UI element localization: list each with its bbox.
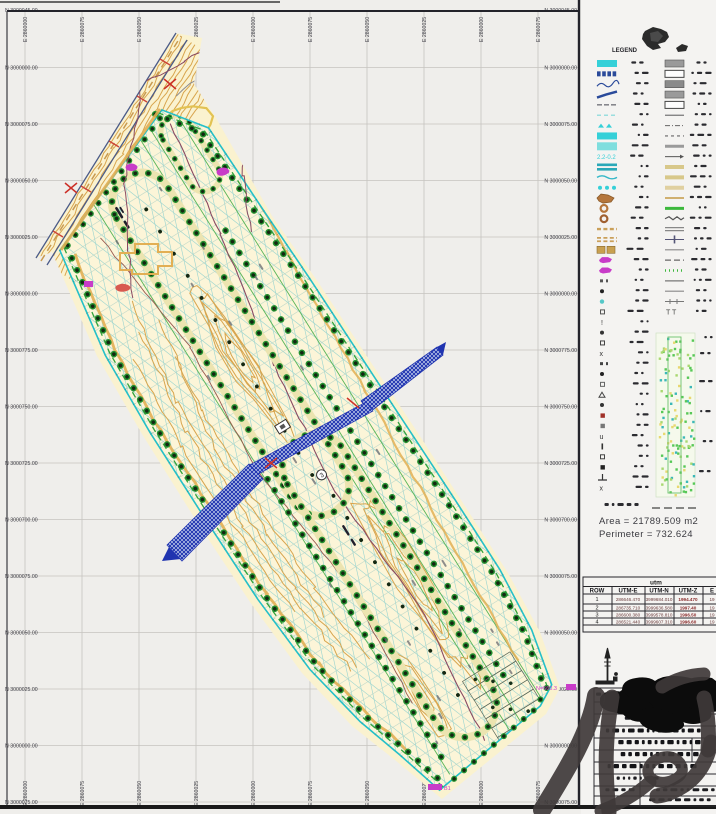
svg-text:N 3000000.00: N 3000000.00 (544, 66, 577, 72)
svg-text:LEGEND: LEGEND (612, 48, 638, 54)
svg-text:utm: utm (650, 580, 662, 587)
svg-text:E 2860000: E 2860000 (251, 17, 257, 42)
svg-text:2.2-0.2: 2.2-0.2 (597, 155, 616, 161)
svg-text:19: 19 (709, 597, 715, 602)
svg-text:N 3000000.00: N 3000000.00 (5, 744, 38, 750)
svg-text:ROW: ROW (590, 589, 605, 595)
svg-text:Area = 21789.509 m2: Area = 21789.509 m2 (599, 516, 698, 527)
svg-text:x: x (600, 351, 604, 358)
svg-text:286521.440: 286521.440 (616, 619, 641, 624)
svg-text:u: u (600, 434, 604, 441)
svg-text:3: 3 (595, 612, 598, 618)
svg-text:T T: T T (666, 309, 677, 316)
svg-text:E 2860075: E 2860075 (80, 17, 86, 42)
svg-text:286735.710: 286735.710 (616, 605, 641, 610)
svg-text:3999636.580: 3999636.580 (646, 605, 673, 610)
svg-text:N 3000075.00: N 3000075.00 (5, 122, 38, 128)
svg-text:N 3000775.00: N 3000775.00 (544, 348, 577, 354)
svg-text:4: 4 (595, 619, 598, 625)
svg-text:N 3000025.00: N 3000025.00 (5, 235, 38, 241)
svg-text:N 3000725.00: N 3000725.00 (5, 461, 38, 467)
svg-text:E 2860075: E 2860075 (308, 781, 314, 806)
svg-text:1996.50: 1996.50 (680, 612, 697, 617)
svg-text:N 3000725.00: N 3000725.00 (544, 461, 577, 467)
svg-text:!: ! (601, 320, 603, 327)
svg-text:N 3000000.00: N 3000000.00 (5, 66, 38, 72)
svg-text:N 3000775.00: N 3000775.00 (5, 348, 38, 354)
svg-text:E 2860000: E 2860000 (479, 781, 485, 806)
svg-text:E 2860050: E 2860050 (365, 781, 371, 806)
svg-text:UTM-Z: UTM-Z (679, 589, 698, 595)
svg-text:19: 19 (709, 612, 715, 617)
svg-text:E 2860000: E 2860000 (479, 17, 485, 42)
svg-text:N 3000025.00: N 3000025.00 (5, 687, 38, 693)
svg-text:1997.40: 1997.40 (680, 605, 697, 610)
svg-text:UTM-N: UTM-N (649, 589, 668, 595)
svg-text:19: 19 (709, 619, 715, 624)
svg-text:1996.60: 1996.60 (680, 619, 697, 624)
svg-text:2: 2 (595, 605, 598, 611)
svg-text:1: 1 (595, 597, 598, 603)
svg-text:E 2860075: E 2860075 (536, 17, 542, 42)
svg-text:N 3000000.00: N 3000000.00 (544, 292, 577, 298)
svg-text:Perimeter = 732.624: Perimeter = 732.624 (599, 529, 693, 540)
svg-text:N 3000075.00: N 3000075.00 (5, 574, 38, 580)
svg-text:x: x (600, 486, 604, 493)
svg-text:B1: B1 (444, 786, 451, 792)
svg-text:286646.470: 286646.470 (616, 597, 641, 602)
svg-text:E 2860025: E 2860025 (422, 17, 428, 42)
svg-text:N 3000700.00: N 3000700.00 (5, 518, 38, 524)
svg-text:3999607.310: 3999607.310 (646, 619, 673, 624)
svg-text:E 2860050: E 2860050 (137, 17, 143, 42)
svg-text:E 2860000: E 2860000 (251, 781, 257, 806)
svg-text:N 3000050.00: N 3000050.00 (5, 631, 38, 637)
svg-text:N 3000050.00: N 3000050.00 (544, 631, 577, 637)
svg-text:N 3000750.00: N 3000750.00 (5, 405, 38, 411)
svg-text:E 2860025: E 2860025 (194, 781, 200, 806)
svg-text:1994.470: 1994.470 (678, 597, 698, 602)
svg-text:E 2860050: E 2860050 (365, 17, 371, 42)
svg-text:N 3000700.00: N 3000700.00 (544, 518, 577, 524)
svg-text:N=560.3: N=560.3 (536, 686, 557, 692)
svg-text:N 3000050.00: N 3000050.00 (5, 179, 38, 185)
svg-text:E 2860075: E 2860075 (80, 781, 86, 806)
svg-text:N 3000075.00: N 3000075.00 (544, 574, 577, 580)
svg-text:286600.380: 286600.380 (616, 612, 641, 617)
svg-text:3999684.010: 3999684.010 (646, 597, 673, 602)
svg-text:E 2860000: E 2860000 (23, 17, 29, 42)
svg-text:N 3000750.00: N 3000750.00 (544, 405, 577, 411)
svg-text:UTM-E: UTM-E (619, 589, 638, 595)
svg-text:3999578.810: 3999578.810 (646, 612, 673, 617)
svg-text:N 3000050.00: N 3000050.00 (544, 179, 577, 185)
svg-text:N 3000075.00: N 3000075.00 (544, 122, 577, 128)
svg-text:E 2860050: E 2860050 (137, 781, 143, 806)
svg-text:E: E (710, 589, 714, 595)
svg-text:N 3000000.00: N 3000000.00 (5, 292, 38, 298)
svg-text:E 2860000: E 2860000 (23, 781, 29, 806)
svg-text:19: 19 (709, 605, 715, 610)
svg-text:E 2860075: E 2860075 (308, 17, 314, 42)
svg-text:N 3000025.00: N 3000025.00 (544, 235, 577, 241)
